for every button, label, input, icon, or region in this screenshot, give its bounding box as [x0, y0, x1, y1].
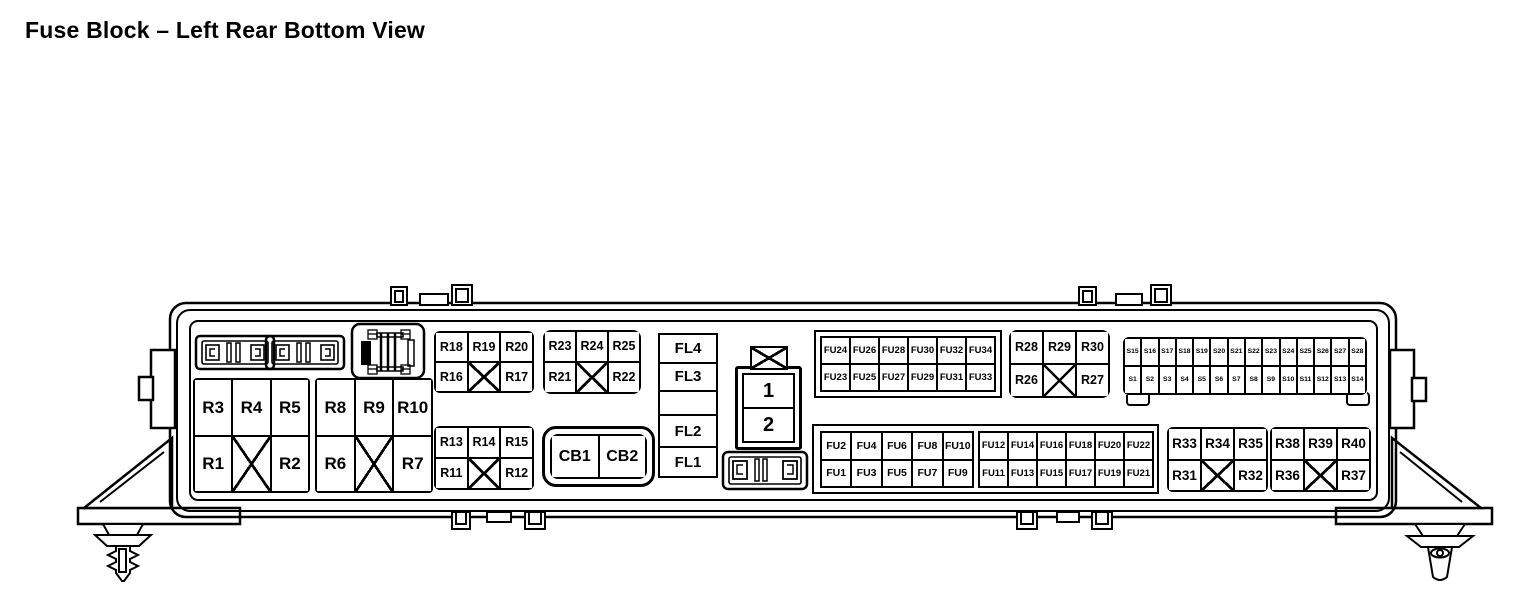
- fu-upper: FU24FU26FU28FU30FU32FU34FU23FU25FU27FU29…: [814, 330, 1002, 398]
- fu-upper-cell-fu28: FU28: [880, 338, 907, 363]
- relay-r36-r40-x-cell: [1305, 461, 1336, 491]
- relay-r36-r40-cell-r36: R36: [1272, 461, 1303, 491]
- relay-r36-r40-cell-r38: R38: [1272, 429, 1303, 459]
- fusible-link-icon-1: [196, 336, 274, 369]
- relay-r11-r15-cell-r14: R14: [469, 428, 500, 457]
- fu-lower-right-cell-fu17: FU17: [1067, 461, 1094, 487]
- s-strip: S15S16S17S18S19S20S21S22S23S24S25S26S27S…: [1123, 337, 1367, 395]
- side-lug-right: [1390, 350, 1426, 428]
- relay-r26-r30-cell-r26: R26: [1011, 365, 1042, 396]
- s-strip-cell-s6: S6: [1211, 367, 1226, 393]
- side-lug-left: [139, 350, 175, 428]
- relay-r1-r5-cell-r2: R2: [272, 437, 308, 492]
- fl-column-cell-fl1: FL1: [660, 448, 716, 476]
- relay-r36-r40-cell-r40: R40: [1338, 429, 1369, 459]
- fu-lower-left-cell-fu3: FU3: [852, 461, 880, 487]
- page: Fuse Block – Left Rear Bottom View: [0, 0, 1536, 608]
- fl-column: FL4FL3FL2FL1: [658, 333, 718, 478]
- s-strip-cell-s9: S9: [1263, 367, 1278, 393]
- relay-r26-r30-cell-r30: R30: [1077, 332, 1108, 363]
- s-strip-cell-s11: S11: [1298, 367, 1313, 393]
- fu-upper-cell-fu24: FU24: [822, 338, 849, 363]
- relay-r11-r15-cell-r13: R13: [436, 428, 467, 457]
- s-strip-cell-s2: S2: [1142, 367, 1157, 393]
- relay-r1-r5-x-cell: [233, 437, 269, 492]
- fu-upper-cell-fu25: FU25: [851, 365, 878, 390]
- connector-x-cap: [750, 346, 788, 370]
- relay-r1-r5-cell-r4: R4: [233, 380, 269, 435]
- relay-r21-r25-cell-r23: R23: [545, 332, 575, 361]
- relay-r26-r30: R28R29R30R26R27: [1009, 330, 1110, 398]
- relay-r36-r40-cell-r39: R39: [1305, 429, 1336, 459]
- relay-r6-r10-cell-r8: R8: [317, 380, 354, 435]
- relay-r21-r25-cell-r24: R24: [577, 332, 607, 361]
- relay-r6-r10-cell-r10: R10: [394, 380, 431, 435]
- fl-column-cell-fl4: FL4: [660, 335, 716, 362]
- fl-column-blank-cell: [660, 392, 716, 414]
- relay-r11-r15-cell-r11: R11: [436, 459, 467, 488]
- fu-lower-left-cell-fu9: FU9: [944, 461, 972, 487]
- relay-r26-r30-cell-r27: R27: [1077, 365, 1108, 396]
- fu-lower-left-cell-fu10: FU10: [944, 433, 972, 459]
- fu-upper-cell-fu33: FU33: [967, 365, 994, 390]
- fu-lower-right-cell-fu18: FU18: [1067, 433, 1094, 459]
- s-strip-cell-s10: S10: [1281, 367, 1296, 393]
- fu-lower-right-cell-fu12: FU12: [980, 433, 1007, 459]
- relay-r16-r20-cell-r20: R20: [501, 333, 532, 361]
- s-strip-cell-s16: S16: [1142, 339, 1157, 365]
- s-strip-cell-s4: S4: [1177, 367, 1192, 393]
- push-pin-left-icon: [95, 524, 151, 581]
- s-strip-cell-s21: S21: [1229, 339, 1244, 365]
- relay-r21-r25-cell-r22: R22: [609, 363, 639, 392]
- relay-r31-r35-x-cell: [1202, 461, 1233, 491]
- relay-r1-r5-cell-r3: R3: [195, 380, 231, 435]
- fl-column-cell-fl3: FL3: [660, 364, 716, 391]
- fu-lower-right-cell-fu21: FU21: [1125, 461, 1152, 487]
- relay-r11-r15: R13R14R15R11R12: [434, 426, 534, 490]
- fu-upper-cell-fu32: FU32: [938, 338, 965, 363]
- s-strip-cell-s25: S25: [1298, 339, 1313, 365]
- s-strip-cell-s17: S17: [1160, 339, 1175, 365]
- relay-r1-r5-cell-r1: R1: [195, 437, 231, 492]
- relay-r26-r30-x-cell: [1044, 365, 1075, 396]
- fuse-block-drawing: [0, 0, 1536, 608]
- relay-r6-r10-x-cell: [356, 437, 393, 492]
- fu-lower-left-cell-fu5: FU5: [883, 461, 911, 487]
- relay-r31-r35: R33R34R35R31R32: [1167, 427, 1268, 492]
- cb-block: CB1CB2: [542, 426, 655, 487]
- s-strip-cell-s1: S1: [1125, 367, 1140, 393]
- s-strip-cell-s23: S23: [1263, 339, 1278, 365]
- fu-upper-cell-fu29: FU29: [909, 365, 936, 390]
- s-strip-cell-s20: S20: [1211, 339, 1226, 365]
- relay-r16-r20-cell-r18: R18: [436, 333, 467, 361]
- fu-lower-left-cell-fu8: FU8: [913, 433, 941, 459]
- connector-inner: 1 2: [742, 373, 795, 443]
- relay-r31-r35-cell-r35: R35: [1235, 429, 1266, 459]
- relay-r21-r25-cell-r21: R21: [545, 363, 575, 392]
- relay-r6-r10-cell-r7: R7: [394, 437, 431, 492]
- fu-lower-right-cell-fu14: FU14: [1009, 433, 1036, 459]
- relay-r31-r35-cell-r32: R32: [1235, 461, 1266, 491]
- s-strip-cell-s18: S18: [1177, 339, 1192, 365]
- fu-upper-cell-fu23: FU23: [822, 365, 849, 390]
- bottom-edge-tabs: [452, 512, 1112, 529]
- fu-lower-right-cell-fu13: FU13: [1009, 461, 1036, 487]
- s-strip-cell-s28: S28: [1350, 339, 1365, 365]
- relay-r21-r25-cell-r25: R25: [609, 332, 639, 361]
- relay-r26-r30-cell-r29: R29: [1044, 332, 1075, 363]
- fu-lower-right-cell-fu20: FU20: [1096, 433, 1123, 459]
- relay-r16-r20-cell-r19: R19: [469, 333, 500, 361]
- relay-r11-r15-x-cell: [469, 459, 500, 488]
- s-strip-cell-s8: S8: [1246, 367, 1261, 393]
- relay-r21-r25: R23R24R25R21R22: [543, 330, 641, 394]
- fu-upper-cell-fu31: FU31: [938, 365, 965, 390]
- relay-r6-r10: R8R9R10R6R7: [315, 378, 433, 493]
- connector-cell-2: 2: [744, 407, 793, 441]
- relay-module-icon: [352, 324, 424, 378]
- fu-lower-left-cell-fu2: FU2: [822, 433, 850, 459]
- fu-lower-right-cell-fu16: FU16: [1038, 433, 1065, 459]
- fu-upper-cell-fu30: FU30: [909, 338, 936, 363]
- s-strip-cell-s3: S3: [1160, 367, 1175, 393]
- relay-r1-r5-cell-r5: R5: [272, 380, 308, 435]
- s-strip-cell-s14: S14: [1350, 367, 1365, 393]
- s-strip-cell-s26: S26: [1315, 339, 1330, 365]
- fu-lower-right-cell-fu11: FU11: [980, 461, 1007, 487]
- push-pin-right-icon: [1407, 524, 1473, 580]
- s-strip-cell-s19: S19: [1194, 339, 1209, 365]
- fu-upper-cell-fu27: FU27: [880, 365, 907, 390]
- relay-r31-r35-cell-r33: R33: [1169, 429, 1200, 459]
- relay-r16-r20-x-cell: [469, 363, 500, 391]
- s-strip-cell-s24: S24: [1281, 339, 1296, 365]
- connector-1-2: 1 2: [735, 346, 802, 450]
- fl-column-cell-fl2: FL2: [660, 416, 716, 446]
- relay-r11-r15-cell-r15: R15: [501, 428, 532, 457]
- fu-lower-left-cell-fu7: FU7: [913, 461, 941, 487]
- relay-r6-r10-cell-r6: R6: [317, 437, 354, 492]
- s-strip-cell-s13: S13: [1332, 367, 1347, 393]
- fusible-link-icon-2: [266, 336, 344, 369]
- s-strip-cell-s12: S12: [1315, 367, 1330, 393]
- fu-lower-left-cell-fu6: FU6: [883, 433, 911, 459]
- relay-r16-r20-cell-r16: R16: [436, 363, 467, 391]
- fu-lower-right-cell-fu19: FU19: [1096, 461, 1123, 487]
- fu-upper-cell-fu34: FU34: [967, 338, 994, 363]
- fu-lower-left-cell-fu1: FU1: [822, 461, 850, 487]
- s-strip-cell-s27: S27: [1332, 339, 1347, 365]
- s-strip-cell-s7: S7: [1229, 367, 1244, 393]
- cb-block-cell-cb2: CB2: [600, 436, 646, 477]
- relay-r6-r10-cell-r9: R9: [356, 380, 393, 435]
- s-strip-cell-s22: S22: [1246, 339, 1261, 365]
- fu-lower-right: FU12FU14FU16FU18FU20FU22FU11FU13FU15FU17…: [978, 431, 1154, 488]
- relay-r26-r30-cell-r28: R28: [1011, 332, 1042, 363]
- fu-lower-left: FU2FU4FU6FU8FU10FU1FU3FU5FU7FU9: [820, 431, 974, 488]
- relay-r11-r15-cell-r12: R12: [501, 459, 532, 488]
- relay-r36-r40: R38R39R40R36R37: [1270, 427, 1371, 492]
- connector-body: 1 2: [735, 366, 802, 450]
- relay-r21-r25-x-cell: [577, 363, 607, 392]
- connector-cell-1: 1: [744, 375, 793, 407]
- relay-r31-r35-cell-r31: R31: [1169, 461, 1200, 491]
- cb-block-cell-cb1: CB1: [552, 436, 598, 477]
- relay-r1-r5: R3R4R5R1R2: [193, 378, 310, 493]
- relay-r36-r40-cell-r37: R37: [1338, 461, 1369, 491]
- relay-r16-r20-cell-r17: R17: [501, 363, 532, 391]
- fu-lower-left-cell-fu4: FU4: [852, 433, 880, 459]
- fu-lower-right-cell-fu15: FU15: [1038, 461, 1065, 487]
- fu-lower-right-cell-fu22: FU22: [1125, 433, 1152, 459]
- relay-r16-r20: R18R19R20R16R17: [434, 331, 534, 393]
- s-strip-cell-s15: S15: [1125, 339, 1140, 365]
- fusible-link-icon-3: [723, 452, 807, 489]
- fu-upper-cell-fu26: FU26: [851, 338, 878, 363]
- relay-r31-r35-cell-r34: R34: [1202, 429, 1233, 459]
- s-strip-cell-s5: S5: [1194, 367, 1209, 393]
